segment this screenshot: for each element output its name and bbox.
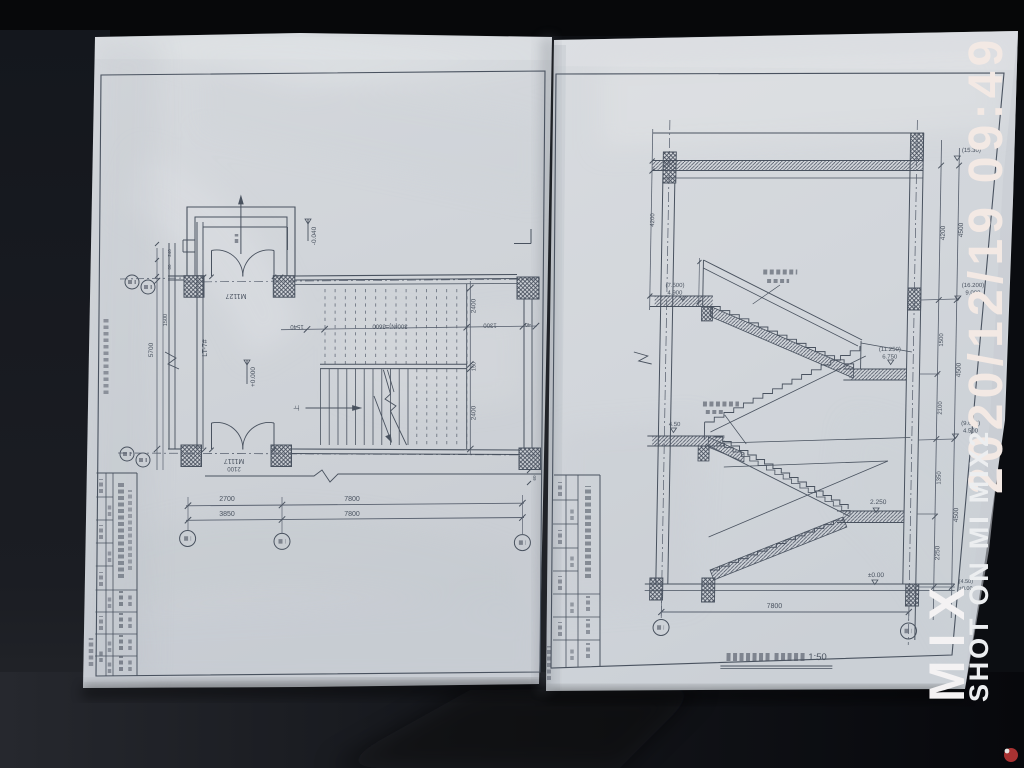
svg-text:2700: 2700 [219,496,235,503]
svg-text:4200: 4200 [940,225,947,240]
svg-text:LT-7#: LT-7# [202,339,209,356]
svg-text:7800: 7800 [344,496,360,503]
svg-text:6.750: 6.750 [882,355,898,361]
svg-text:2.250: 2.250 [870,499,887,506]
svg-text:SHOT ON MI MIX2: SHOT ON MI MIX2 [964,429,994,702]
svg-text:40: 40 [525,321,531,327]
svg-text:1540: 1540 [290,323,304,329]
svg-text:1500: 1500 [939,333,945,347]
svg-text:2250: 2250 [934,545,941,560]
svg-text:240: 240 [167,249,172,257]
svg-text:4.900: 4.900 [667,291,683,297]
svg-text:7800: 7800 [344,511,360,518]
svg-text:1300: 1300 [483,322,497,328]
svg-text:-0.040: -0.040 [311,226,318,245]
svg-text:80: 80 [167,264,172,270]
svg-text:3850: 3850 [219,511,235,518]
svg-text:4.50: 4.50 [669,422,681,428]
svg-text:150: 150 [472,362,478,371]
svg-text:60: 60 [532,475,537,481]
svg-text:2100: 2100 [938,401,944,415]
svg-text:2400: 2400 [471,405,478,420]
svg-text:7800: 7800 [767,603,783,610]
svg-text:300(N)=3600: 300(N)=3600 [372,323,408,329]
svg-text:±0.00: ±0.00 [868,572,885,579]
svg-text:2400: 2400 [471,298,478,313]
svg-text:1500: 1500 [163,314,169,326]
svg-text:2020/12/19 09:49: 2020/12/19 09:49 [960,34,1013,494]
svg-text:上: 上 [293,405,301,411]
svg-text:(11.250): (11.250) [879,347,901,353]
svg-text:1350: 1350 [937,471,943,485]
svg-text:(7.500): (7.500) [665,283,684,289]
svg-text:4200: 4200 [650,213,656,227]
svg-text:+0.000: +0.000 [250,367,257,387]
svg-text:1:50: 1:50 [808,652,827,663]
svg-text:2100: 2100 [227,465,241,471]
svg-text:M1117: M1117 [224,457,244,464]
svg-text:4500: 4500 [953,507,960,522]
svg-text:5700: 5700 [148,342,155,357]
svg-text:M1127: M1127 [225,292,246,299]
